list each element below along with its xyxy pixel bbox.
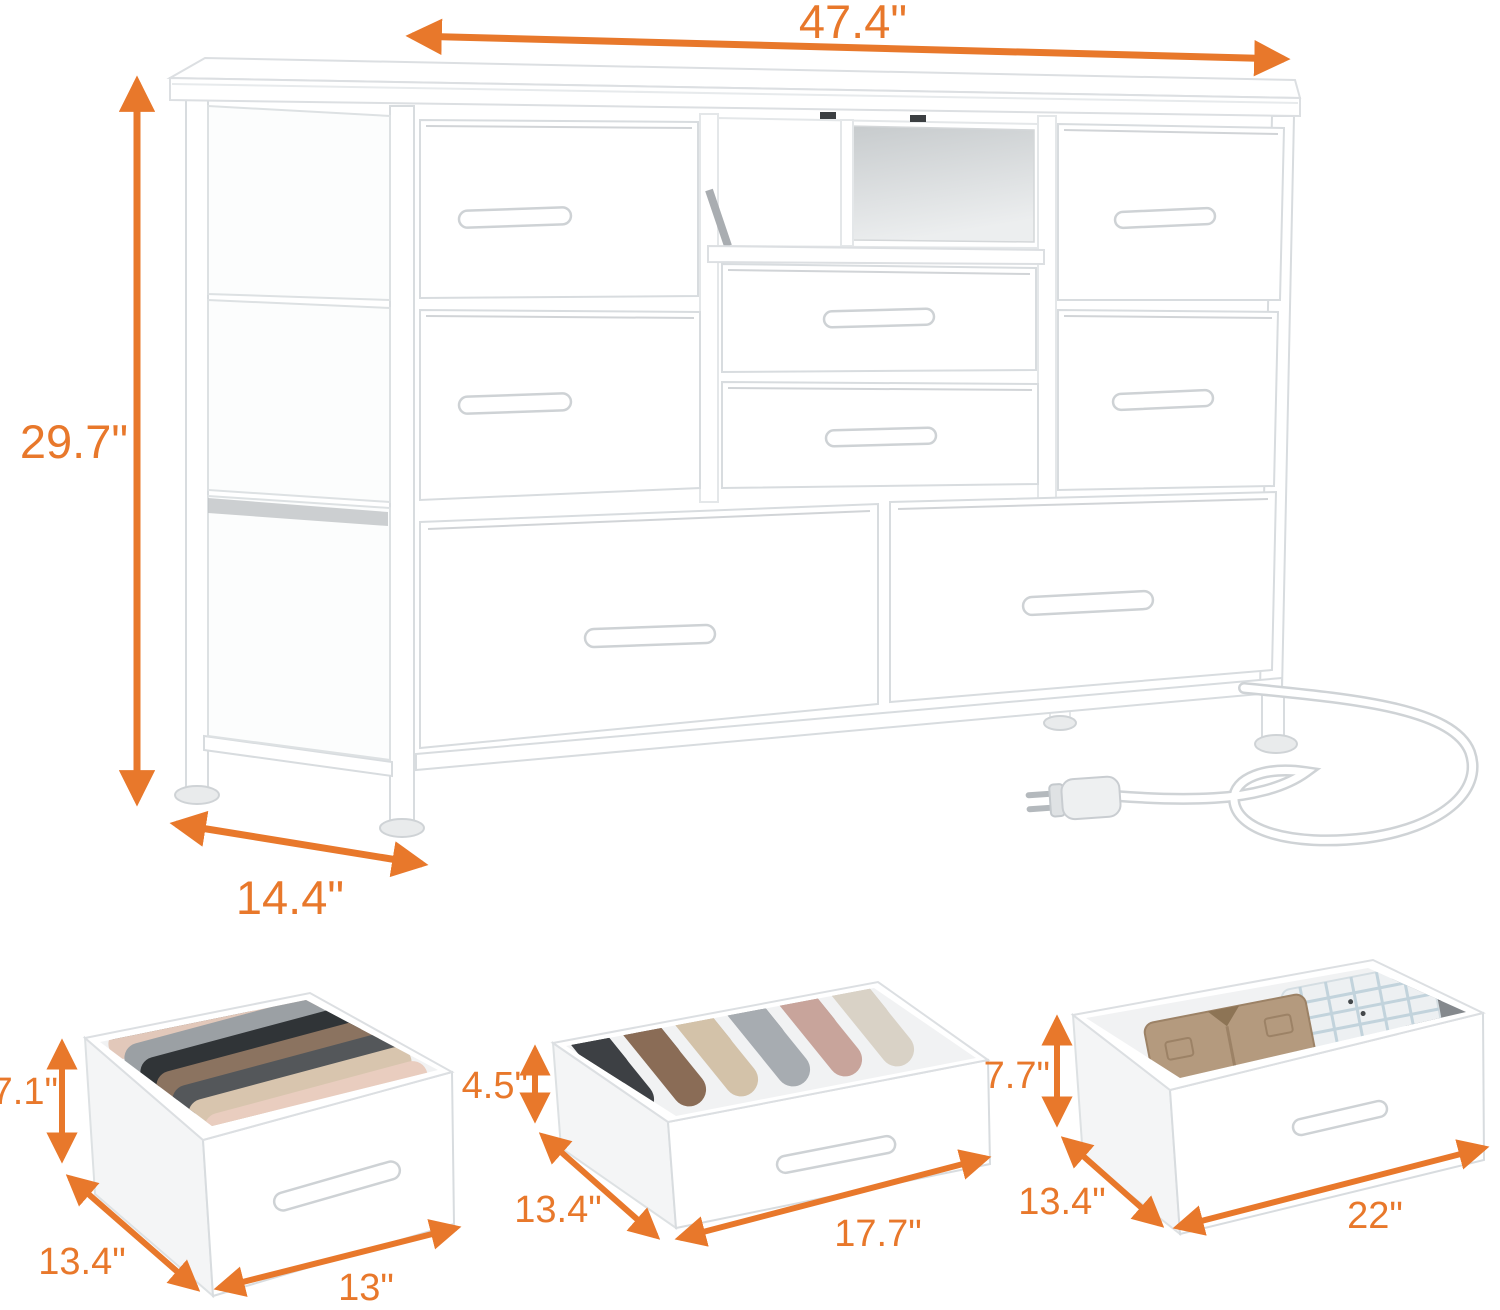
- power-cord: [1025, 688, 1473, 840]
- front-post-right-middle: [1038, 116, 1056, 500]
- main-height-label: 29.7": [20, 415, 128, 468]
- drawer-middle-right: [1058, 310, 1278, 490]
- box3-height-label: 7.7": [984, 1055, 1050, 1097]
- drawer-middle-left: [420, 310, 700, 500]
- open-media-shelf: [708, 112, 1044, 264]
- middle-foot: [1044, 716, 1076, 730]
- drawer-center-upper: [722, 264, 1036, 372]
- plug-body: [1061, 776, 1122, 820]
- box1-depth-label: 13.4": [38, 1241, 125, 1283]
- box1-width-label: 13": [338, 1267, 394, 1309]
- dresser-top-board: [170, 58, 1300, 116]
- power-plug: [1025, 776, 1122, 822]
- shelf-board: [708, 246, 1044, 264]
- product-dimension-diagram: 47.4" 29.7" 14.4" 7.1" 13.4" 13" 4.5" 13…: [0, 0, 1500, 1310]
- drawer-bottom-left-wide: [420, 504, 878, 748]
- drawer-handle: [1113, 390, 1214, 410]
- drawer-handle: [826, 428, 936, 447]
- side-open-bottom: [208, 496, 390, 760]
- box2-height-label: 4.5": [462, 1065, 528, 1107]
- dresser-illustration: [170, 58, 1473, 840]
- back-left-foot: [175, 786, 219, 804]
- drawer-box-medium: [535, 929, 990, 1228]
- main-width-label: 47.4": [799, 0, 907, 48]
- shelf-clip-right: [910, 115, 926, 122]
- drawer-handle: [585, 625, 716, 648]
- box2-width-label: 17.7": [834, 1213, 921, 1255]
- drawer-center-lower: [722, 382, 1038, 488]
- back-left-leg: [186, 96, 208, 790]
- drawer-bottom-right-wide: [890, 492, 1276, 702]
- shelf-mullion: [841, 120, 853, 246]
- drawer-handle: [824, 309, 934, 328]
- main-depth-label: 14.4": [236, 871, 344, 924]
- box2-depth-label: 13.4": [514, 1189, 601, 1231]
- box1-height-label: 7.1": [0, 1071, 58, 1113]
- power-cord-line: [1116, 688, 1473, 840]
- box3-depth-label: 13.4": [1018, 1181, 1105, 1223]
- side-panel-middle: [208, 300, 390, 502]
- drawer-handle: [459, 207, 572, 228]
- drawer-box-large: [1073, 949, 1496, 1234]
- shelf-back-panel: [850, 126, 1034, 242]
- box3-width-label: 22": [1347, 1195, 1403, 1237]
- dresser-side-panels: [208, 106, 390, 760]
- drawer-top-right: [1058, 124, 1284, 300]
- drawer-top-left: [420, 120, 698, 298]
- side-panel-top: [208, 106, 390, 300]
- front-left-foot: [380, 819, 424, 837]
- shelf-clip-left: [820, 112, 836, 119]
- drawer-handle: [459, 393, 572, 414]
- front-post-left-middle: [700, 114, 718, 502]
- front-left-leg: [390, 106, 414, 822]
- front-right-foot: [1255, 735, 1297, 753]
- drawer-handle: [1115, 208, 1216, 228]
